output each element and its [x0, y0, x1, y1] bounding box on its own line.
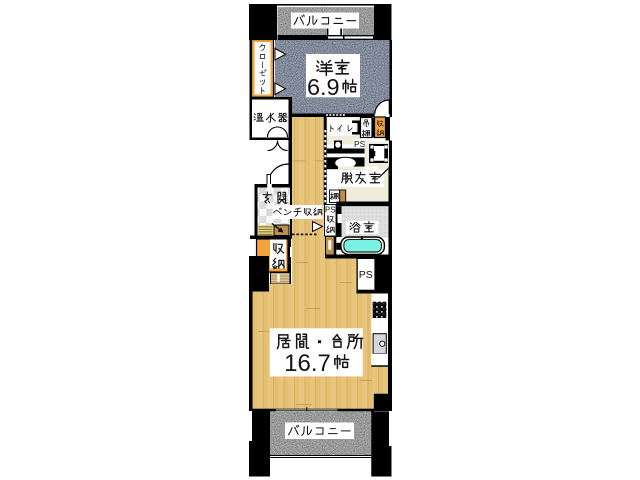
svg-text:6.9: 6.9	[307, 74, 340, 100]
svg-text:PS: PS	[354, 139, 366, 149]
svg-text:16.7: 16.7	[284, 350, 331, 377]
svg-text:PS: PS	[359, 269, 373, 281]
svg-text:PS: PS	[325, 206, 336, 215]
